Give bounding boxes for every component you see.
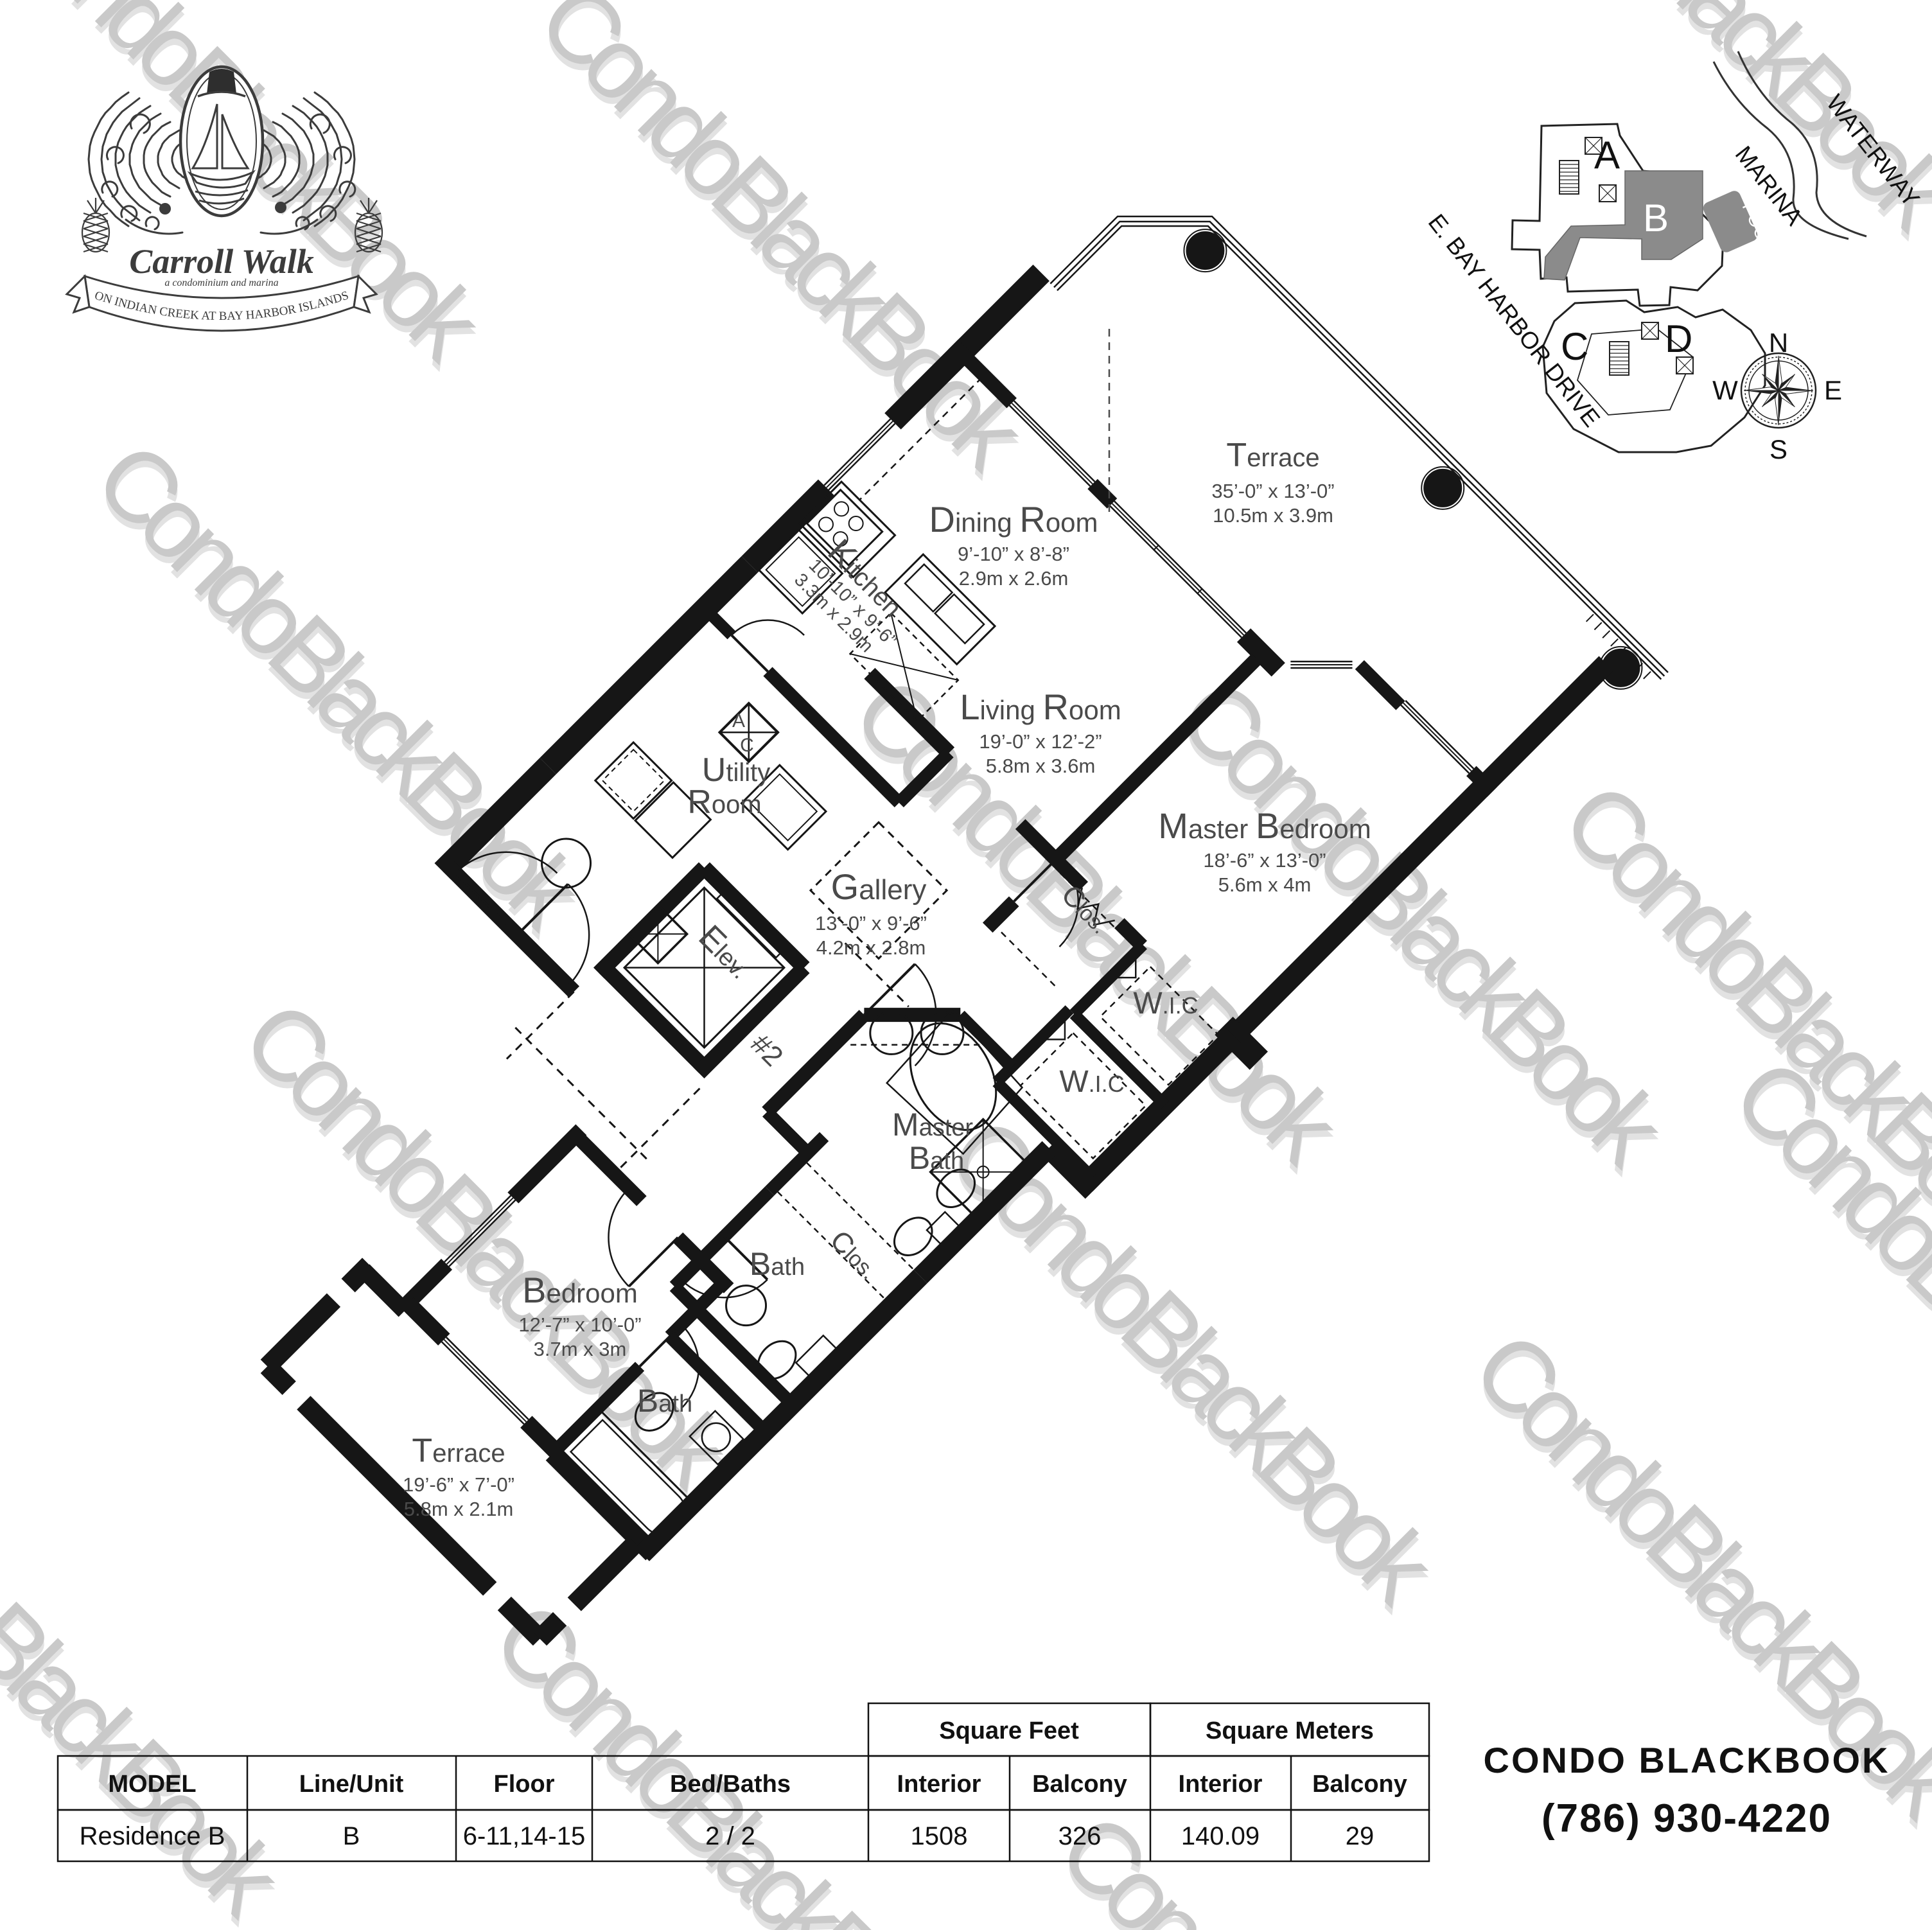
svg-text:9’-10” x 8’-8”: 9’-10” x 8’-8” [958, 543, 1069, 565]
svg-text:(786) 930-4220: (786) 930-4220 [1541, 1796, 1832, 1841]
svg-text:5.6m x 4m: 5.6m x 4m [1218, 873, 1312, 896]
svg-text:5.8m x 2.1m: 5.8m x 2.1m [404, 1498, 514, 1520]
svg-text:A: A [1594, 134, 1620, 177]
svg-text:Bed/Baths: Bed/Baths [670, 1771, 791, 1798]
svg-text:3.7m x 3m: 3.7m x 3m [534, 1338, 627, 1360]
svg-text:C: C [1561, 325, 1588, 368]
svg-text:B: B [1643, 197, 1669, 240]
svg-text:19’-0” x 12’-2”: 19’-0” x 12’-2” [979, 730, 1102, 753]
svg-text:N: N [1769, 328, 1788, 358]
svg-text:Balcony: Balcony [1032, 1771, 1127, 1798]
svg-text:Interior: Interior [1179, 1771, 1263, 1798]
svg-text:19’-6” x 7’-0”: 19’-6” x 7’-0” [403, 1473, 514, 1496]
svg-text:Interior: Interior [897, 1771, 981, 1798]
svg-text:35’-0” x 13’-0”: 35’-0” x 13’-0” [1211, 480, 1334, 502]
svg-text:Square Feet: Square Feet [939, 1717, 1079, 1744]
svg-text:Residence B: Residence B [80, 1822, 225, 1850]
svg-text:13’-0” x 9’-6”: 13’-0” x 9’-6” [815, 912, 927, 934]
svg-text:4.2m x 2.8m: 4.2m x 2.8m [816, 936, 926, 959]
svg-text:5.8m x 3.6m: 5.8m x 3.6m [986, 755, 1096, 777]
svg-text:2.9m x 2.6m: 2.9m x 2.6m [959, 567, 1069, 590]
svg-text:140.09: 140.09 [1181, 1822, 1260, 1850]
svg-text:CONDO BLACKBOOK: CONDO BLACKBOOK [1484, 1740, 1890, 1780]
svg-text:B: B [343, 1822, 360, 1850]
svg-text:C: C [740, 735, 754, 756]
svg-text:326: 326 [1058, 1822, 1102, 1850]
svg-text:29: 29 [1346, 1822, 1374, 1850]
svg-text:a condominium and marina: a condominium and marina [164, 277, 278, 288]
svg-text:Balcony: Balcony [1312, 1771, 1407, 1798]
svg-text:Floor: Floor [494, 1771, 555, 1798]
svg-text:S: S [1770, 434, 1787, 464]
svg-text:12’-7” x 10’-0”: 12’-7” x 10’-0” [518, 1313, 641, 1336]
svg-text:Square Meters: Square Meters [1206, 1717, 1374, 1744]
svg-text:18’-6” x 13’-0”: 18’-6” x 13’-0” [1203, 849, 1326, 872]
svg-text:1508: 1508 [911, 1822, 968, 1850]
svg-text:6-11,14-15: 6-11,14-15 [463, 1822, 586, 1850]
svg-text:2 / 2: 2 / 2 [705, 1822, 755, 1850]
svg-text:10.5m x 3.9m: 10.5m x 3.9m [1213, 504, 1333, 527]
svg-text:Line/Unit: Line/Unit [299, 1771, 404, 1798]
svg-text:MODEL: MODEL [108, 1771, 196, 1798]
svg-text:D: D [1665, 317, 1692, 360]
svg-text:E: E [1824, 375, 1842, 405]
svg-text:Carroll Walk: Carroll Walk [129, 242, 314, 281]
svg-text:W: W [1712, 375, 1738, 405]
svg-text:A: A [732, 710, 745, 732]
